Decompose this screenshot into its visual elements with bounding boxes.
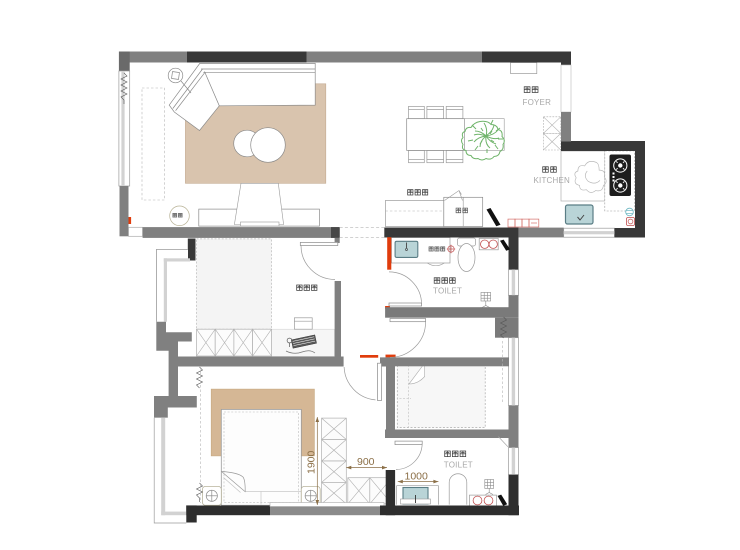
svg-text:1900: 1900 xyxy=(306,450,318,474)
svg-text:TOILET: TOILET xyxy=(433,287,462,296)
svg-text:1000: 1000 xyxy=(405,471,429,483)
svg-text:FOYER: FOYER xyxy=(523,98,552,107)
svg-text:900: 900 xyxy=(357,456,375,468)
svg-text:TOILET: TOILET xyxy=(444,461,473,470)
svg-text:KITCHEN: KITCHEN xyxy=(534,176,571,185)
